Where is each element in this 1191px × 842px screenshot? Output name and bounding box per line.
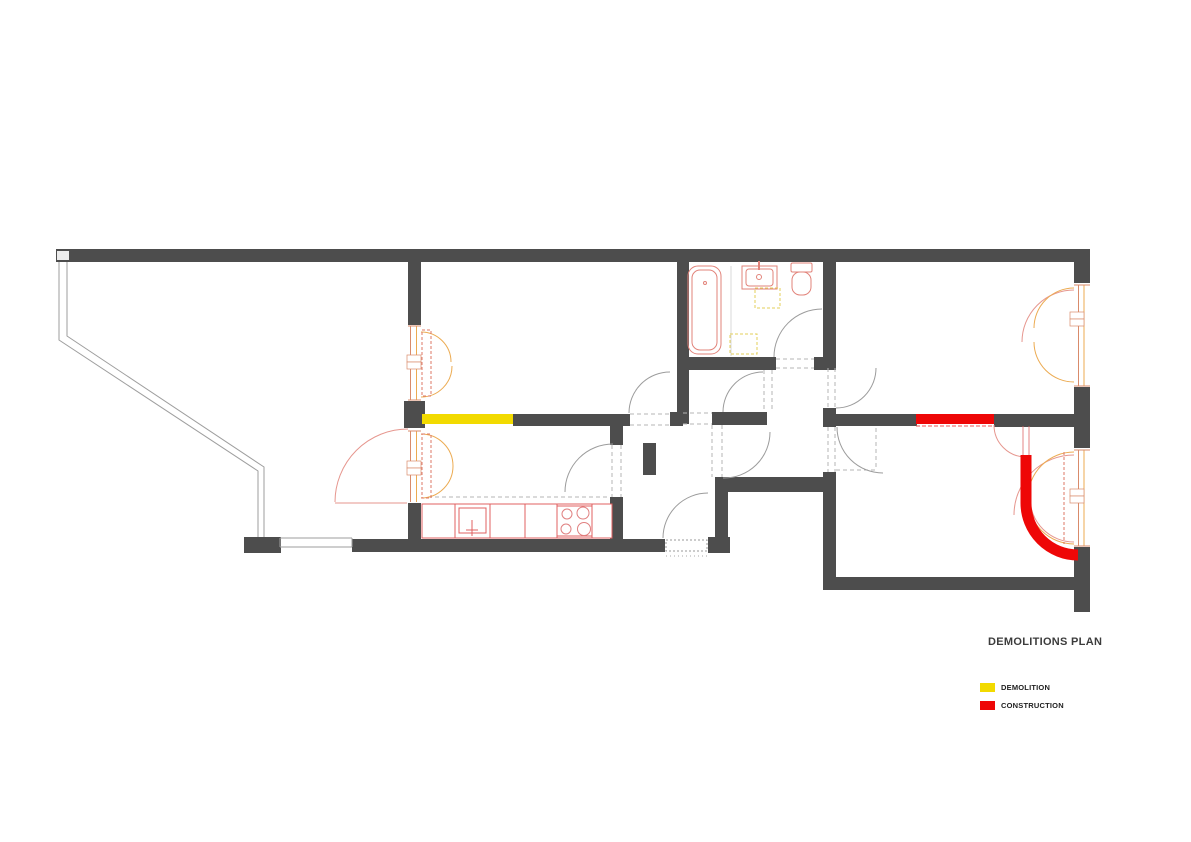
walls (56, 249, 1090, 612)
demolition-swatch (980, 683, 995, 692)
demolitions-plan-page: DEMOLITIONS PLAN DEMOLITION CONSTRUCTION (0, 0, 1191, 842)
toilet (791, 263, 812, 295)
kitchen-counter (422, 504, 612, 538)
legend-row-demolition: DEMOLITION (980, 683, 1064, 692)
bathroom-sink (742, 261, 777, 289)
construction-wall-segment (916, 414, 994, 424)
construction-highlights (916, 414, 1078, 555)
construction-label: CONSTRUCTION (1001, 701, 1064, 710)
demolition-wall-highlight (422, 414, 513, 424)
construction-swatch (980, 701, 995, 710)
appliance-outlines (730, 288, 780, 354)
plan-title: DEMOLITIONS PLAN (988, 636, 1168, 648)
kitchen-fixtures (422, 504, 612, 538)
legend-row-construction: CONSTRUCTION (980, 701, 1064, 710)
demolition-label: DEMOLITION (1001, 683, 1050, 692)
entry-door (666, 540, 707, 556)
dashed-openings (428, 359, 878, 497)
bathtub (688, 266, 721, 354)
legend: DEMOLITION CONSTRUCTION (980, 683, 1064, 719)
terrace-thin-walls (59, 262, 352, 547)
bathroom-fixtures (688, 261, 812, 356)
